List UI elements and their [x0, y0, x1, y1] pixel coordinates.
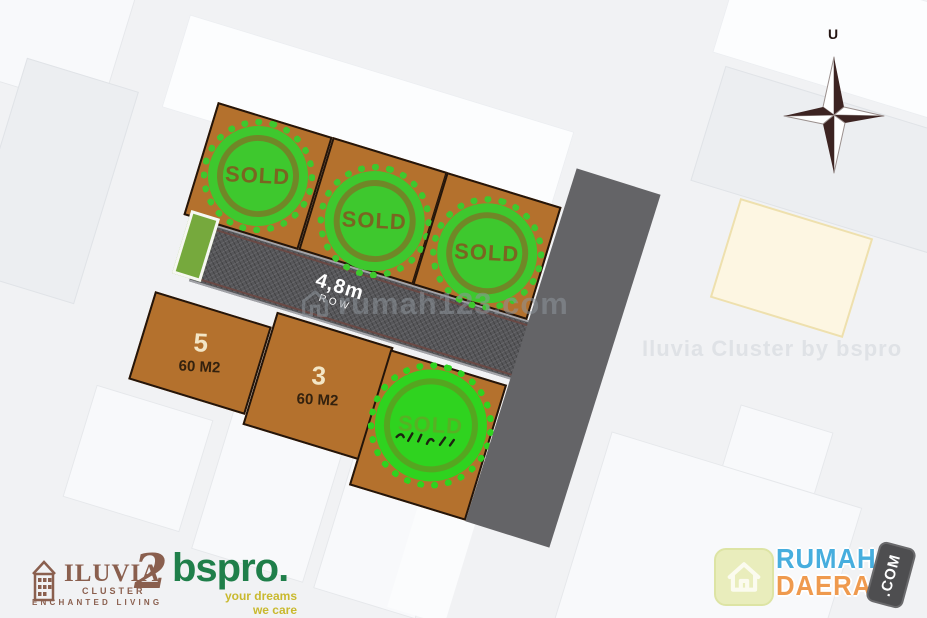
iluvia-house-icon	[30, 554, 64, 604]
bspro-tagline: your dreams we care	[172, 589, 297, 618]
bspro-name: bspro.	[172, 548, 297, 588]
sold-stamp-label: SOLD	[454, 239, 520, 268]
plot-area: 60 M2	[296, 390, 339, 409]
rumah-daerah-logo: RUMAH DAERAH .COM	[714, 546, 910, 608]
house-icon	[725, 559, 763, 595]
rumah-daerah-house-badge	[714, 548, 774, 606]
background-building	[0, 58, 139, 305]
plot-number: 3	[297, 360, 340, 392]
bspro-tagline-line2: we care	[172, 603, 297, 617]
watermark-text: rumah123.com	[338, 286, 569, 322]
plot-5-label: 5 60 M2	[178, 327, 222, 376]
compass-star-icon	[778, 52, 888, 177]
compass-rose: U	[778, 52, 888, 177]
iluvia-logo: ILUVIA 2 CLUSTER ENCHANTED LIVING	[30, 552, 180, 614]
iluvia-sub: CLUSTER	[82, 586, 146, 596]
compass-north-label: U	[828, 26, 838, 42]
plot-area: 60 M2	[178, 357, 221, 376]
dotcom-badge-text: .COM	[877, 552, 905, 598]
site-plan-canvas: 4,8m ROW SOLD SOLD SOLD 5 60 M2 3 60 M2 …	[0, 0, 927, 618]
bspro-tagline-line1: your dreams	[172, 589, 297, 603]
plot-number: 5	[179, 327, 222, 359]
sold-stamp-label: SOLD	[341, 206, 407, 235]
faint-watermark: Iluvia Cluster by bspro	[642, 336, 902, 362]
bspro-logo: bspro. your dreams we care	[172, 548, 297, 616]
rumah123-watermark: rumah123.com	[298, 286, 569, 322]
sold-stamp-label: SOLD	[225, 161, 291, 190]
house-icon	[298, 287, 332, 321]
plot-3-label: 3 60 M2	[296, 360, 340, 409]
iluvia-tagline: ENCHANTED LIVING	[32, 598, 162, 607]
background-building	[63, 385, 214, 533]
